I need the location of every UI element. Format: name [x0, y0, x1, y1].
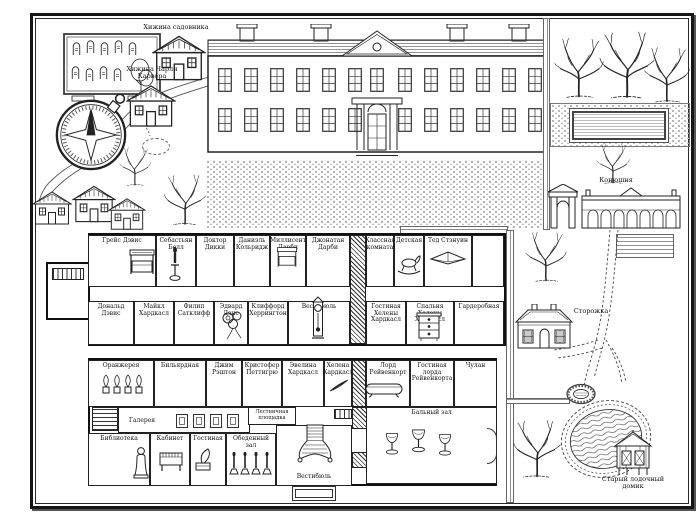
carver-hut-icon: [126, 84, 176, 128]
room-label: Хелена Хардкасл: [322, 363, 354, 376]
room-jim-rashton: Джим Рэштон: [206, 360, 242, 407]
cottage-icon: [108, 196, 146, 232]
room-jonathan-derby: Джонатан Дарби: [306, 235, 350, 287]
chimney-shaft: [352, 452, 367, 468]
gate-arch-icon: [548, 184, 578, 230]
bare-tree-icon: [643, 38, 691, 110]
room-label: Лорд Рейвенкорт: [367, 363, 409, 376]
quill-icon: [328, 379, 350, 393]
room-label: Филип Сатклифф: [175, 304, 213, 317]
room-daniel-coleridge: Даниэль Кольридж: [234, 235, 270, 287]
room-michael-hardcastle: Майкл Хардкасл: [134, 301, 174, 345]
stables-label: Конюшня: [590, 177, 642, 184]
grand-staircase-icon: [294, 424, 336, 464]
candle-icon: [169, 247, 181, 283]
room-label: Гостиная лорда Рейвенкорта: [411, 363, 454, 383]
stable-icon: [580, 186, 682, 230]
room-christopher-pettigrew: Кристофер Петтигрю: [242, 360, 282, 407]
room-label: Доктор Дикки: [197, 238, 233, 251]
bush-icon: [142, 138, 170, 155]
stairs-icon: [52, 268, 84, 280]
champagne-glass-icon: [384, 432, 400, 456]
champagne-glass-icon: [410, 428, 427, 454]
room-label: Даниэль Кольридж: [235, 238, 269, 251]
room-billiard: Бильярдная: [154, 360, 206, 407]
room-label: Бильярдная: [160, 363, 200, 370]
bathtub-icon: [364, 382, 404, 398]
dresser-icon: [416, 311, 442, 342]
room-helena-sitting: Гостиная Хелены Хардкасл: [366, 301, 406, 345]
room-label: Клиффорд Херрингтон: [248, 304, 288, 317]
room-label: Эвелина Хардкасл: [283, 363, 323, 376]
lodge-icon: [514, 304, 574, 350]
room-label: Чулан: [465, 363, 487, 370]
room-label: Бальный зал: [410, 410, 452, 417]
room-label: Гостиная Хелены Хардкасл: [367, 304, 405, 324]
room-label: Кабинет: [156, 436, 185, 443]
room-label: Грейс Дэвис: [101, 238, 143, 245]
room-label: Оранжерея: [102, 363, 141, 370]
chimney-shaft: [352, 407, 367, 429]
room-closet: Чулан: [454, 360, 497, 407]
room-ravencourt-sitting: Гостиная лорда Рейвенкорта: [410, 360, 454, 407]
room-wardrobe: Гардеробная: [454, 301, 504, 345]
room-donald-davis: Дональд Дэвис: [88, 301, 134, 345]
wreath-icon: [219, 309, 245, 341]
gardener-hut-label: Хижина садовника: [136, 24, 216, 31]
room-label: Гардеробная: [457, 304, 500, 311]
boathouse-label: Старый лодочный домик: [600, 476, 666, 491]
piano-icon: [158, 450, 184, 472]
cottage-icon: [32, 188, 72, 228]
room-label: Гостиная: [192, 436, 224, 443]
room-label: Лестничная площадка: [249, 410, 295, 422]
stairs-icon: [92, 407, 118, 431]
room-schoolroom: Классная комната: [366, 235, 394, 287]
room-label: Классная комната: [364, 238, 396, 251]
painting-icon: [176, 414, 239, 428]
champagne-glass-icon: [437, 433, 453, 457]
pond-icon: [572, 111, 666, 140]
room-doctor-dickie: Доктор Дикки: [196, 235, 234, 287]
room-unlabeled: [472, 235, 504, 287]
grandfather-clock-icon: [311, 296, 325, 340]
stairs-icon: [334, 409, 352, 419]
bare-tree-icon: [512, 412, 562, 484]
room-label: Джим Рэштон: [207, 363, 241, 376]
room-stair-landing: Лестничная площадка: [248, 407, 296, 425]
bare-tree-icon: [518, 230, 574, 282]
room-label: Дональд Дэвис: [89, 304, 133, 317]
room-evelyn-hardcastle: Эвелина Хардкасл: [282, 360, 324, 407]
bed-icon: [128, 248, 156, 278]
room-label: Майкл Хардкасл: [135, 304, 173, 317]
room-label: Библиотека: [99, 436, 139, 443]
room-label: Галерея: [119, 418, 156, 425]
estate-map: Хижина садовника Хижина Чарли Карвера: [0, 0, 699, 519]
room-label: Джонатан Дарби: [307, 238, 349, 251]
bow-window: [487, 428, 497, 464]
room-philip-sutcliffe: Филип Сатклифф: [174, 301, 214, 345]
rocking-horse-icon: [396, 252, 422, 276]
courtyard-cobblestones: [206, 160, 548, 228]
room-label: Кристофер Петтигрю: [243, 363, 281, 376]
manor-house-icon: [206, 24, 548, 160]
room-clifford-herrington: Клиффорд Херрингтон: [248, 301, 288, 345]
room-label: Обеденный зал: [227, 436, 275, 449]
book-icon: [429, 250, 467, 265]
candlesticks-icon: [228, 452, 274, 478]
statue-icon: [132, 446, 150, 480]
bed-icon: [275, 246, 299, 270]
room-label: Детская: [395, 238, 423, 245]
lodge-label: Сторожка: [568, 308, 614, 315]
bare-tree-icon: [163, 168, 207, 230]
room-label: Тед Стэнуин: [427, 238, 469, 245]
plants-icon: [100, 374, 150, 394]
carver-hut-label: Хижина Чарли Карвера: [122, 66, 182, 81]
entrance-porch: [292, 486, 336, 501]
boathouse-icon: [613, 430, 653, 476]
room-label: Вестибюль: [296, 474, 333, 481]
gramophone-icon: [192, 448, 214, 472]
